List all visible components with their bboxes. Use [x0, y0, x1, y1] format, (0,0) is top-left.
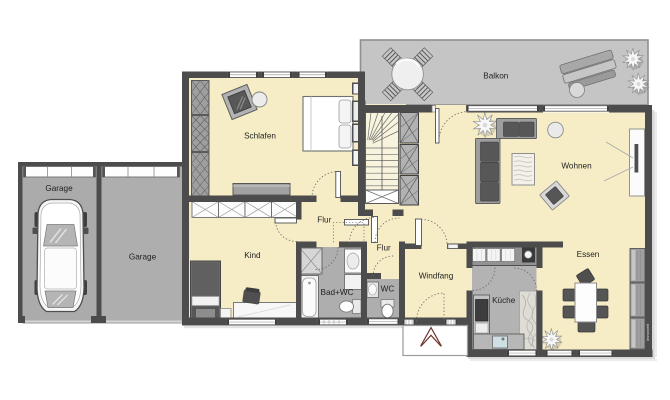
svg-text:Bad+WC: Bad+WC	[321, 288, 354, 297]
svg-text:Schlafen: Schlafen	[244, 132, 276, 141]
svg-text:Garage: Garage	[45, 184, 73, 193]
svg-text:Wohnen: Wohnen	[561, 162, 592, 171]
svg-text:Garage: Garage	[129, 253, 157, 262]
svg-text:Windfang: Windfang	[419, 271, 454, 280]
svg-text:Flur: Flur	[317, 215, 331, 224]
svg-text:Immowelt: Immowelt	[645, 323, 650, 341]
svg-text:Essen: Essen	[577, 250, 600, 259]
svg-text:Küche: Küche	[492, 296, 516, 305]
svg-text:Flur: Flur	[377, 244, 391, 253]
svg-text:WC: WC	[381, 284, 395, 293]
svg-text:Kind: Kind	[244, 251, 261, 260]
svg-text:Balkon: Balkon	[483, 71, 508, 80]
